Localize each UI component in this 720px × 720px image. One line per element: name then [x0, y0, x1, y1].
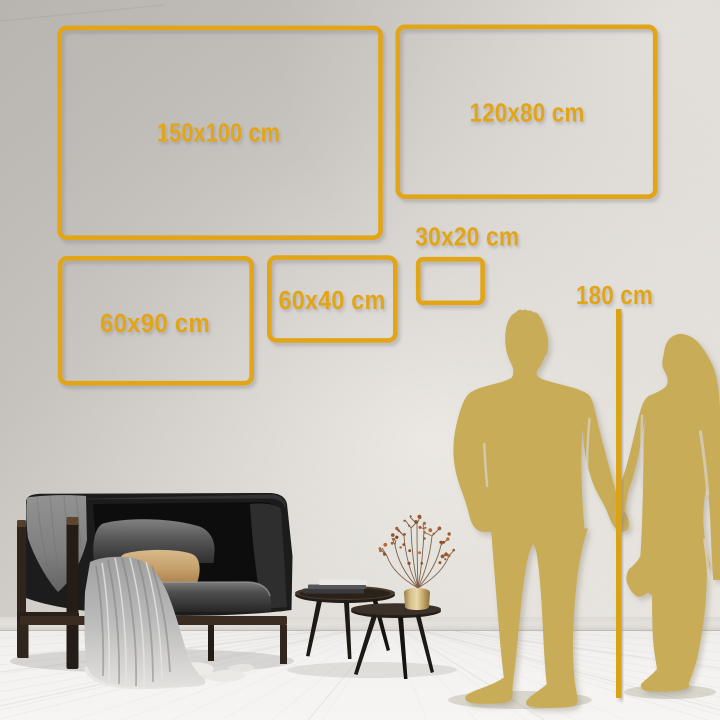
svg-text:30x20 cm: 30x20 cm	[415, 223, 519, 251]
svg-text:60x90 cm: 60x90 cm	[100, 310, 210, 338]
svg-text:150x100 cm: 150x100 cm	[157, 120, 280, 148]
svg-text:60x40 cm: 60x40 cm	[279, 287, 386, 315]
svg-text:120x80 cm: 120x80 cm	[470, 100, 585, 128]
svg-text:180 cm: 180 cm	[576, 282, 653, 310]
